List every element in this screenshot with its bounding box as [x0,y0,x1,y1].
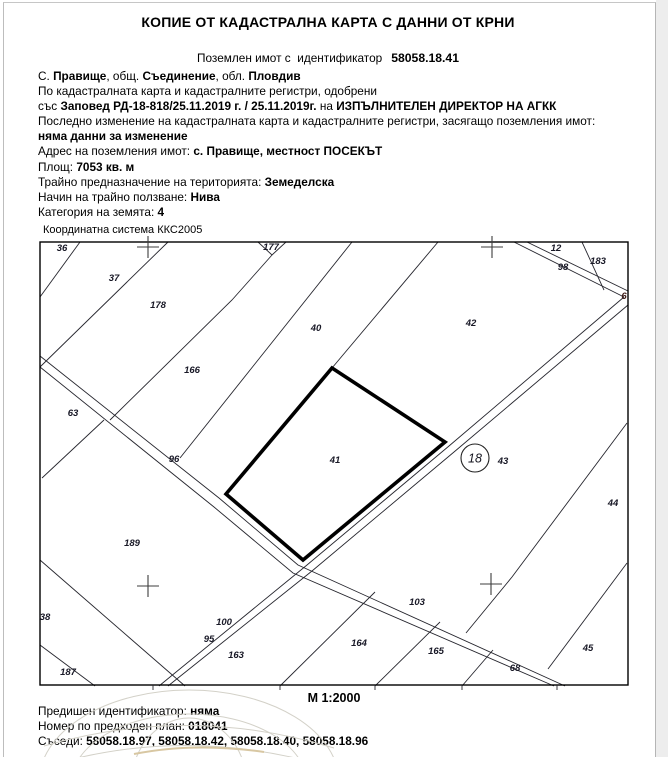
value-text: няма [190,704,219,718]
parcel-number-label: 183 [590,256,607,267]
parcel-number-label: 166 [184,365,201,376]
text-line: С. Правище, общ. Съединение, обл. Пловди… [38,69,650,84]
parcel-number-label: 187 [60,667,77,678]
parcel-number-label: 178 [150,300,167,311]
parcel-number-label: 100 [216,617,233,628]
parcel-boundary-line [40,242,168,367]
value-text: няма данни за изменение [38,129,188,143]
cadastral-document: КОПИЕ ОТ КАДАСТРАЛНА КАРТА С ДАННИ ОТ КР… [0,0,668,757]
road-line [514,242,624,297]
parcel-number-label: 37 [109,273,120,284]
text-line: няма данни за изменение [38,129,650,144]
parcel-number-label: 98 [558,262,569,273]
label-text: Номер по предходен план: [38,719,188,733]
identifier-caption: Поземлен имот с идентификатор [197,51,382,65]
text-line: Номер по предходен план: 018041 [38,719,650,734]
text-line: Трайно предназначение на територията: Зе… [38,175,650,190]
region-number-label: 18 [468,452,482,466]
value-text: Пловдив [248,69,300,83]
parcel-number-label: 96 [169,454,180,465]
value-text: ИЗПЪЛНИТЕЛЕН ДИРЕКТОР НА АГКК [336,99,556,113]
value-text: Земеделска [265,175,335,189]
parcel-identifier-line: Поземлен имот с идентификатор58058.18.41 [0,51,656,65]
parcel-number-label: 163 [228,650,245,661]
value-text: Правище [53,69,106,83]
label-text: на [317,99,337,113]
parcel-number-label: 12 [551,243,562,254]
value-text: 7053 кв. м [76,160,134,174]
parcel-number-label: 68 [510,663,521,674]
label-text: Предишен идентификатор: [38,704,190,718]
parcel-number-label: 103 [409,597,426,608]
footer-details: Предишен идентификатор: нямаНомер по пре… [38,704,650,749]
road-line [168,305,628,686]
page-edge-shadow [656,0,668,757]
parcel-boundary-line [332,242,438,368]
text-line: Категория на земята: 4 [38,205,650,220]
parcel-number-label: 63 [68,408,79,419]
value-text: Нива [190,190,219,204]
label-text: Категория на земята: [38,205,158,219]
label-text: Адрес на поземления имот: [38,144,193,158]
parcel-identifier: 58058.18.41 [391,51,459,65]
parcel-number-label: 36 [57,243,68,254]
cadastral-map: 3637178177166404212981836639643441893818… [33,228,635,700]
parcel-number-label: 38 [40,612,51,623]
parcel-number-label: 165 [428,646,445,657]
label-text: Начин на трайно ползване: [38,190,190,204]
label-text: Последно изменение на кадастралната карт… [38,114,595,128]
map-scale-label: М 1:2000 [33,691,635,705]
value-text: 58058.18.97, 58058.18.42, 58058.18.40, 5… [86,734,368,748]
label-text: С. [38,69,53,83]
parcel-number-label: 177 [263,242,280,253]
text-line: По кадастралната карта и кадастралните р… [38,84,650,99]
parcel-number-label: 45 [582,643,594,654]
label-text: , обл. [216,69,249,83]
value-text: с. Правище, местност ПОСЕКЪТ [193,144,382,158]
label-text: Трайно предназначение на територията: [38,175,265,189]
parcel-number-label: 95 [204,634,215,645]
document-title: КОПИЕ ОТ КАДАСТРАЛНА КАРТА С ДАННИ ОТ КР… [0,14,656,30]
parcel-number-label: 42 [465,318,477,329]
text-line: Начин на трайно ползване: Нива [38,190,650,205]
text-line: Адрес на поземления имот: с. Правище, ме… [38,144,650,159]
parcel-boundary-line [462,650,493,686]
parcel-boundary-line [466,423,627,633]
value-text: Заповед РД-18-818/25.11.2019 г. / 25.11.… [60,99,316,113]
parcel-number-label: 189 [124,538,141,549]
text-line: Площ: 7053 кв. м [38,160,650,175]
label-text: Съседи: [38,734,86,748]
label-text: , общ. [106,69,142,83]
property-details: С. Правище, общ. Съединение, обл. Пловди… [38,69,650,220]
parcel-number-label: 164 [351,638,368,649]
label-text: По кадастралната карта и кадастралните р… [38,84,377,98]
label-text: Площ: [38,160,76,174]
parcel-boundary-line [40,645,95,686]
parcel-number-label: 43 [497,456,509,467]
parcel-number-label: 44 [607,498,619,509]
parcel-boundary-line [110,255,272,420]
road-line [527,242,628,291]
parcel-boundary-line [180,242,352,458]
value-text: Съединение [142,69,215,83]
road-line [40,367,554,686]
parcel-number-label: 6 [621,291,627,302]
text-line: Предишен идентификатор: няма [38,704,650,719]
label-text: със [38,99,60,113]
subject-parcel-number: 41 [329,455,341,466]
text-line: със Заповед РД-18-818/25.11.2019 г. / 25… [38,99,650,114]
text-line: Последно изменение на кадастралната карт… [38,114,650,129]
value-text: 018041 [188,719,227,733]
parcel-number-label: 40 [310,323,322,334]
parcel-boundary-line [42,420,104,478]
text-line: Съседи: 58058.18.97, 58058.18.42, 58058.… [38,734,650,749]
value-text: 4 [158,205,165,219]
